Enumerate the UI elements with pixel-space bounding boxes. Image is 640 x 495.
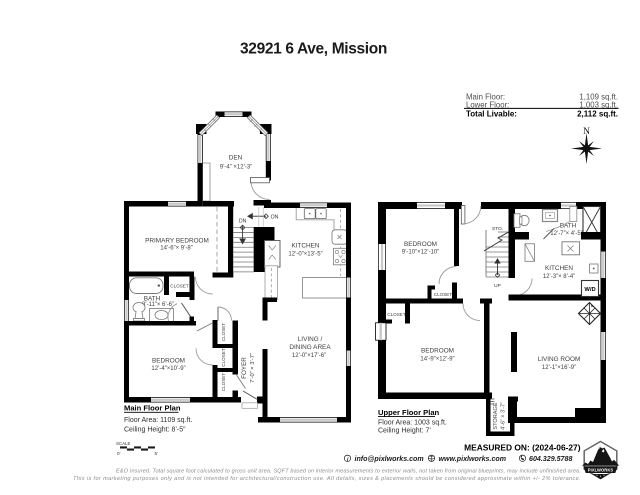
svg-text:STORAGE: STORAGE (493, 402, 499, 430)
svg-text:Upper Floor Plan: Upper Floor Plan (378, 408, 440, 417)
svg-text:LIVING ROOM: LIVING ROOM (538, 356, 581, 363)
svg-text:12’-7”× 4’-5”: 12’-7”× 4’-5” (550, 231, 583, 237)
svg-text:4’-6” × 3’-7”: 4’-6” × 3’-7” (501, 402, 507, 430)
svg-text:604.329.5788: 604.329.5788 (529, 455, 572, 463)
svg-text:7’-0” × 3’-7”: 7’-0” × 3’-7” (250, 353, 256, 383)
svg-text:Floor Area: 1109 sq.ft.: Floor Area: 1109 sq.ft. (124, 417, 192, 424)
svg-text:BEDROOM: BEDROOM (152, 358, 185, 365)
svg-text:ON: ON (271, 214, 279, 220)
svg-text:info@pixlworks.com: info@pixlworks.com (355, 455, 425, 463)
svg-text:MEASURED ON: (2024-06-27): MEASURED ON: (2024-06-27) (464, 442, 581, 452)
svg-text:UP: UP (494, 283, 501, 289)
svg-text:CLOSET: CLOSET (387, 312, 406, 317)
svg-text:8’-11”× 6’-6”: 8’-11”× 6’-6” (142, 302, 174, 308)
svg-text:PRIMARY BEDROOM: PRIMARY BEDROOM (145, 237, 209, 244)
svg-text:Ceiling Height: 8’-5”: Ceiling Height: 8’-5” (124, 427, 186, 434)
svg-text:CLOSET: CLOSET (434, 292, 453, 297)
svg-text:N: N (583, 127, 590, 137)
svg-text:W/D: W/D (584, 287, 595, 293)
svg-text:12’-0”×17’-6”: 12’-0”×17’-6” (292, 353, 326, 359)
svg-text:12’-3”× 8’-4”: 12’-3”× 8’-4” (543, 274, 576, 280)
svg-text:5’: 5’ (155, 451, 159, 456)
svg-text:www.pixlworks.com: www.pixlworks.com (439, 455, 507, 463)
svg-text:Ceiling Height: 7’: Ceiling Height: 7’ (378, 427, 431, 434)
svg-text:BEDROOM: BEDROOM (421, 348, 454, 355)
svg-text:12’-1”×16’-9”: 12’-1”×16’-9” (542, 365, 576, 371)
svg-text:9’-10”×12’-10”: 9’-10”×12’-10” (402, 249, 440, 255)
svg-text:DINING AREA: DINING AREA (289, 344, 331, 351)
svg-text:SCALE: SCALE (116, 441, 130, 446)
svg-text:12’-4”×10’-9”: 12’-4”×10’-9” (151, 366, 185, 372)
svg-text:2,112 sq.ft.: 2,112 sq.ft. (577, 109, 618, 118)
svg-text:32921 6 Ave, Mission: 32921 6 Ave, Mission (240, 41, 387, 58)
svg-text:Main Floor Plan: Main Floor Plan (124, 404, 181, 413)
svg-text:0’: 0’ (117, 451, 121, 456)
svg-text:Total Livable:: Total Livable: (466, 109, 517, 118)
svg-text:LIVING /: LIVING / (298, 336, 323, 343)
svg-text:CLOSET: CLOSET (221, 348, 226, 367)
svg-text:FOYER: FOYER (241, 357, 248, 379)
svg-text:14’-6”× 9’-8”: 14’-6”× 9’-8” (160, 246, 193, 252)
svg-text:14’-9”×12’-9”: 14’-9”×12’-9” (420, 357, 454, 363)
svg-text:KITCHEN: KITCHEN (545, 265, 573, 272)
svg-text:This is for marketing purposes: This is for marketing purposes only and … (73, 476, 581, 482)
svg-text:DEN: DEN (229, 154, 243, 161)
svg-text:BEDROOM: BEDROOM (404, 241, 437, 248)
svg-text:STO.: STO. (492, 226, 503, 232)
svg-text:DN: DN (239, 219, 247, 225)
svg-text:Floor Area: 1003 sq.ft.: Floor Area: 1003 sq.ft. (378, 419, 447, 426)
svg-text:PIXLWORKS: PIXLWORKS (588, 468, 614, 473)
svg-text:CLOSET: CLOSET (221, 323, 226, 342)
svg-text:CLOSET: CLOSET (221, 373, 226, 392)
svg-text:i: i (347, 457, 349, 463)
svg-text:CLOSET: CLOSET (170, 284, 189, 289)
svg-text:BATH: BATH (560, 222, 577, 229)
svg-text:12’-0”×13’-5”: 12’-0”×13’-5” (288, 251, 322, 257)
svg-text:KITCHEN: KITCHEN (291, 242, 319, 249)
svg-text:E&O Insured. Total square foo: E&O Insured. Total square foot calculate… (116, 468, 581, 474)
svg-text:9’-4” ×12’-3”: 9’-4” ×12’-3” (220, 164, 253, 170)
